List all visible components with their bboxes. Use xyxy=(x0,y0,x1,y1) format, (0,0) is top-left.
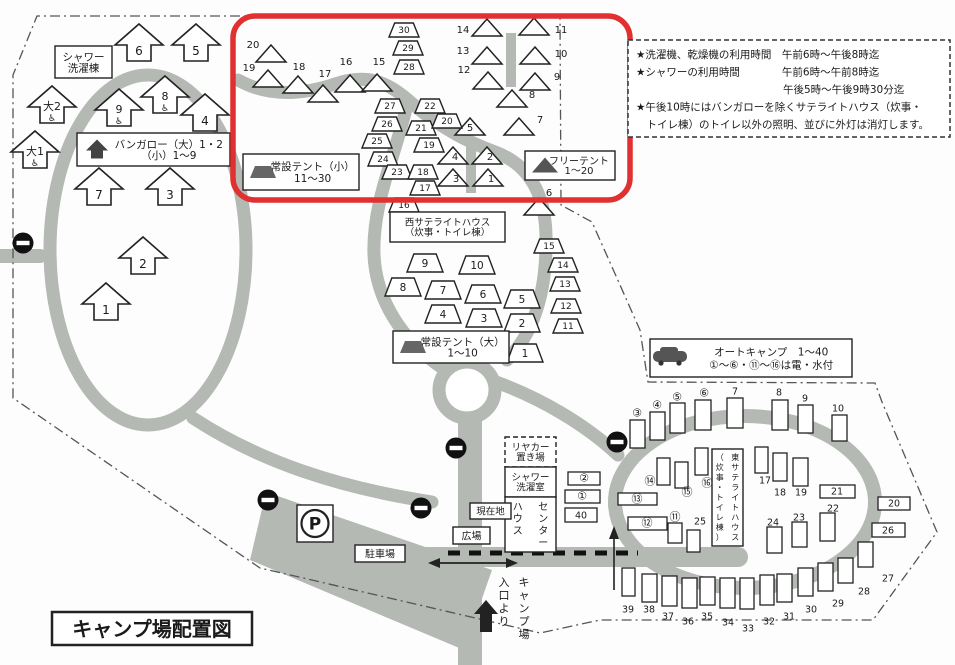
auto-site-35: 35 xyxy=(700,577,715,622)
large-tent-9: 9 xyxy=(407,254,443,272)
svg-text:2: 2 xyxy=(139,257,147,271)
svg-text:3: 3 xyxy=(453,174,459,185)
svg-text:午後5時～午後9時30分迄: 午後5時～午後9時30分迄 xyxy=(636,83,905,96)
large-tent-4: 4 xyxy=(425,305,461,323)
wheelchair-icon: ♿ xyxy=(48,114,56,124)
svg-text:4: 4 xyxy=(452,152,458,163)
svg-text:★シャワーの利用時間 午前6時～午前8時迄: ★シャワーの利用時間 午前6時～午前8時迄 xyxy=(636,66,880,79)
svg-text:⑯: ⑯ xyxy=(702,476,713,489)
svg-text:イ: イ xyxy=(716,503,724,512)
svg-text:キ: キ xyxy=(519,576,530,589)
svg-text:25: 25 xyxy=(694,516,706,527)
bungalow-大1: 大1♿ xyxy=(11,131,59,169)
svg-text:⑤: ⑤ xyxy=(672,390,682,403)
small-tent-28: 28 xyxy=(394,60,424,74)
svg-text:（炊事・トイレ棟）: （炊事・トイレ棟） xyxy=(405,227,491,239)
center-house-label: センターハウス xyxy=(505,497,556,552)
free-tent-7: 7 xyxy=(504,115,543,135)
auto-site-19: 19 xyxy=(793,458,808,498)
svg-text:④: ④ xyxy=(652,398,662,411)
svg-text:イ: イ xyxy=(731,493,739,502)
auto-site-26: 26 xyxy=(872,523,905,537)
svg-text:洗濯室: 洗濯室 xyxy=(516,482,545,494)
svg-text:東: 東 xyxy=(731,452,739,462)
auto-site-18: 18 xyxy=(773,453,787,498)
svg-text:6: 6 xyxy=(480,289,487,301)
svg-text:⑥: ⑥ xyxy=(699,386,709,399)
svg-text:12: 12 xyxy=(560,302,571,312)
small-tent-20: 20 xyxy=(432,114,462,128)
small-tent-27: 27 xyxy=(375,99,405,113)
auto-site-23: 23 xyxy=(792,512,807,547)
small-tent-29: 29 xyxy=(393,41,423,55)
svg-text:27: 27 xyxy=(384,102,395,112)
auto-site-⑤: ⑤ xyxy=(670,390,685,433)
no-entry-sign xyxy=(446,438,467,459)
auto-site-20: 20 xyxy=(878,497,910,510)
svg-text:22: 22 xyxy=(424,102,435,112)
bungalow-legend: バンガロー（大）1・2（小）1～9 xyxy=(77,133,230,166)
free-tent-20: 20 xyxy=(247,40,286,62)
svg-text:23: 23 xyxy=(793,512,805,523)
info-box: ★洗濯機、乾燥機の利用時間 午前6時～午後8時迄★シャワーの利用時間 午前6時～… xyxy=(628,40,950,137)
svg-text:タ: タ xyxy=(538,525,548,537)
svg-text:②: ② xyxy=(579,471,589,484)
svg-text:40: 40 xyxy=(575,510,587,521)
svg-text:19: 19 xyxy=(243,63,256,74)
svg-text:21: 21 xyxy=(831,486,843,497)
svg-text:39: 39 xyxy=(622,604,634,615)
svg-text:4: 4 xyxy=(201,114,209,128)
svg-text:⑬: ⑬ xyxy=(632,492,643,505)
shower-laundry-building-label: シャワー洗濯棟 xyxy=(55,46,112,78)
svg-text:14: 14 xyxy=(557,261,569,271)
svg-text:ト: ト xyxy=(731,503,739,512)
auto-site-24: 24 xyxy=(767,517,782,553)
svg-text:8: 8 xyxy=(776,387,782,398)
large-tent-10: 10 xyxy=(459,256,495,274)
free-tent-9: 9 xyxy=(520,72,560,90)
svg-text:ャ: ャ xyxy=(519,589,530,602)
svg-text:ハ: ハ xyxy=(513,502,523,513)
free-tent-11: 11 xyxy=(519,18,567,36)
svg-text:11: 11 xyxy=(562,322,573,332)
east-satellite-house-label: 東サテライトハウス（炊事・トイレ棟） xyxy=(712,449,743,546)
no-entry-sign xyxy=(607,432,628,453)
svg-text:①～⑥・⑪～⑯は電・水付: ①～⑥・⑪～⑯は電・水付 xyxy=(709,358,833,371)
rear-cart-storage-label: リヤカー置き場 xyxy=(505,437,556,467)
svg-text:19: 19 xyxy=(423,141,435,151)
svg-text:キャンプ場配置図: キャンプ場配置図 xyxy=(72,617,231,641)
free-tent-18: 18 xyxy=(283,62,313,93)
svg-text:10: 10 xyxy=(555,49,568,60)
svg-text:ウ: ウ xyxy=(513,513,523,525)
usage-info-box: ★洗濯機、乾燥機の利用時間 午前6時～午後8時迄★シャワーの利用時間 午前6時～… xyxy=(628,40,950,137)
auto-site-27: 27 xyxy=(858,542,894,584)
small-tent-23: 23 xyxy=(382,165,412,179)
free-tent-3: 3 xyxy=(438,169,468,186)
svg-text:駐車場: 駐車場 xyxy=(365,547,395,560)
auto-site-38: 38 xyxy=(642,574,657,615)
parking-area xyxy=(250,492,492,650)
svg-text:9: 9 xyxy=(802,393,808,404)
large-tent-5: 5 xyxy=(504,290,540,308)
svg-text:15: 15 xyxy=(373,57,386,68)
large-tent-legend: 常設テント（大）1～10 xyxy=(393,331,509,363)
svg-text:炊: 炊 xyxy=(716,462,724,472)
svg-text:28: 28 xyxy=(403,63,415,73)
svg-text:16: 16 xyxy=(340,57,353,68)
svg-text:20: 20 xyxy=(441,117,453,127)
svg-text:15: 15 xyxy=(543,242,554,252)
svg-text:14: 14 xyxy=(457,25,470,36)
svg-text:26: 26 xyxy=(381,120,393,130)
svg-text:常設テント（小）: 常設テント（小） xyxy=(271,160,355,173)
auto-site-⑮: ⑮ xyxy=(675,462,693,498)
auto-site-39: 39 xyxy=(622,568,635,615)
svg-text:（小）1～9: （小）1～9 xyxy=(141,150,196,162)
svg-text:38: 38 xyxy=(643,604,655,615)
svg-text:24: 24 xyxy=(767,517,779,528)
svg-text:5: 5 xyxy=(192,44,200,58)
auto-site-36: 36 xyxy=(682,578,697,627)
no-entry-sign xyxy=(411,498,432,519)
svg-text:20: 20 xyxy=(247,40,260,51)
auto-site-⑯: ⑯ xyxy=(695,448,713,489)
large-tent-2: 2 xyxy=(504,314,540,332)
southwest-connector-road xyxy=(193,418,432,502)
svg-text:1～20: 1～20 xyxy=(564,166,593,177)
campground-map: 65大2♿9♿8♿4大1♿732120191817161554231141113… xyxy=(0,0,955,665)
wheelchair-icon: ♿ xyxy=(161,104,169,114)
auto-site-34: 34 xyxy=(720,578,735,628)
svg-text:①: ① xyxy=(577,489,587,502)
small-tent-13: 13 xyxy=(550,277,580,291)
svg-text:広場: 広場 xyxy=(462,529,482,542)
bungalow-6: 6 xyxy=(115,24,163,61)
svg-text:1: 1 xyxy=(522,348,529,360)
svg-text:11: 11 xyxy=(555,25,568,36)
svg-text:セ: セ xyxy=(538,501,548,513)
auto-site-④: ④ xyxy=(650,398,665,440)
auto-camp-legend: オートキャンプ 1～40①～⑥・⑪～⑯は電・水付 xyxy=(650,339,852,377)
svg-text:8: 8 xyxy=(400,282,407,294)
bungalow-1: 1 xyxy=(82,283,130,320)
auto-site-①: ① xyxy=(565,489,600,503)
svg-text:19: 19 xyxy=(795,487,807,498)
svg-text:★洗濯機、乾燥機の利用時間 午前6時～午後8時迄: ★洗濯機、乾燥機の利用時間 午前6時～午後8時迄 xyxy=(636,48,880,61)
bungalow-3: 3 xyxy=(146,168,194,205)
auto-site-37: 37 xyxy=(662,576,677,622)
map-title: キャンプ場配置図 xyxy=(52,612,252,645)
auto-site-10: 10 xyxy=(832,403,847,441)
svg-text:34: 34 xyxy=(722,617,734,628)
small-tent-19: 19 xyxy=(414,138,444,152)
svg-text:）: ） xyxy=(716,533,724,542)
auto-site-9: 9 xyxy=(798,393,813,433)
auto-site-32: 32 xyxy=(760,575,775,627)
auto-site-40: 40 xyxy=(565,508,597,522)
svg-text:32: 32 xyxy=(763,616,775,627)
svg-text:ス: ス xyxy=(731,533,739,542)
svg-text:大2: 大2 xyxy=(43,99,61,113)
small-tent-11: 11 xyxy=(553,319,583,333)
svg-text:1: 1 xyxy=(488,174,494,185)
current-location-label: 現在地 xyxy=(470,503,511,519)
large-tent-6: 6 xyxy=(465,285,501,303)
svg-text:37: 37 xyxy=(662,611,674,622)
auto-site-17: 17 xyxy=(755,447,771,486)
free-tent-1: 1 xyxy=(473,169,503,186)
svg-text:トイレ棟）のトイレ以外の照明、並びに外灯は消灯します。: トイレ棟）のトイレ以外の照明、並びに外灯は消灯します。 xyxy=(636,118,929,131)
auto-site-②: ② xyxy=(568,471,600,485)
svg-text:8: 8 xyxy=(529,90,535,101)
wheelchair-icon: ♿ xyxy=(115,117,123,127)
svg-text:26: 26 xyxy=(882,525,894,536)
svg-text:20: 20 xyxy=(888,498,900,509)
small-tent-26: 26 xyxy=(372,117,402,131)
svg-text:7: 7 xyxy=(732,386,738,397)
auto-site-⑭: ⑭ xyxy=(645,458,671,487)
large-tent-3: 3 xyxy=(466,309,502,327)
svg-text:8: 8 xyxy=(162,90,169,103)
svg-text:大1: 大1 xyxy=(26,144,44,158)
svg-text:棟: 棟 xyxy=(716,522,724,532)
svg-text:ウ: ウ xyxy=(731,523,739,532)
roundabout xyxy=(439,362,495,418)
svg-text:よ: よ xyxy=(499,602,510,615)
svg-text:・: ・ xyxy=(716,483,724,492)
svg-text:プ: プ xyxy=(519,615,530,628)
svg-text:ン: ン xyxy=(538,514,548,525)
svg-text:11～30: 11～30 xyxy=(294,173,331,185)
svg-text:事: 事 xyxy=(716,472,724,482)
small-tent-12: 12 xyxy=(551,299,581,313)
svg-text:現在地: 現在地 xyxy=(476,506,505,518)
svg-text:35: 35 xyxy=(701,611,713,622)
small-tent-22: 22 xyxy=(415,99,445,113)
svg-text:27: 27 xyxy=(882,573,894,584)
small-tent-18: 18 xyxy=(408,165,438,179)
svg-text:22: 22 xyxy=(827,503,839,514)
svg-text:入: 入 xyxy=(499,576,510,589)
svg-text:12: 12 xyxy=(458,65,471,76)
svg-text:口: 口 xyxy=(499,589,510,602)
svg-text:31: 31 xyxy=(783,611,795,622)
small-tent-17: 17 xyxy=(410,181,440,195)
svg-text:ハ: ハ xyxy=(731,513,739,522)
svg-text:17: 17 xyxy=(419,184,430,194)
auto-site-25: 25 xyxy=(687,516,706,552)
auto-site-7: 7 xyxy=(727,386,743,428)
free-tent-14: 14 xyxy=(457,19,502,36)
svg-text:29: 29 xyxy=(832,598,844,609)
svg-text:28: 28 xyxy=(858,586,870,597)
bungalow-5: 5 xyxy=(172,24,220,61)
svg-text:1～10: 1～10 xyxy=(447,347,478,359)
svg-text:4: 4 xyxy=(440,309,447,321)
svg-text:★午後10時にはバンガローを除くサテライトハウス（炊事・: ★午後10時にはバンガローを除くサテライトハウス（炊事・ xyxy=(636,101,922,114)
svg-text:1: 1 xyxy=(102,303,110,317)
svg-text:9: 9 xyxy=(554,72,560,83)
svg-text:9: 9 xyxy=(422,258,429,270)
svg-text:⑫: ⑫ xyxy=(642,516,653,529)
svg-text:ン: ン xyxy=(519,602,530,615)
small-tent-30: 30 xyxy=(389,23,419,37)
svg-text:18: 18 xyxy=(417,168,429,178)
auto-site-⑬: ⑬ xyxy=(618,492,657,505)
entrance-label: キャンプ場入口より xyxy=(499,576,530,641)
svg-text:7: 7 xyxy=(537,115,543,126)
svg-text:2: 2 xyxy=(519,318,526,330)
svg-text:サ: サ xyxy=(731,463,739,472)
free-tent-10: 10 xyxy=(520,47,567,64)
free-tent-legend: フリーテント1～20 xyxy=(525,151,615,180)
auto-site-31: 31 xyxy=(777,574,795,622)
large-tent-7: 7 xyxy=(425,281,461,299)
svg-text:洗濯棟: 洗濯棟 xyxy=(68,61,100,74)
svg-text:ス: ス xyxy=(513,526,523,537)
svg-text:ト: ト xyxy=(716,493,724,502)
map-canvas: 65大2♿9♿8♿4大1♿732120191817161554231141113… xyxy=(0,0,955,665)
small-tent-14: 14 xyxy=(548,258,578,272)
plaza-label: 広場 xyxy=(453,527,490,544)
tent-divider-bar xyxy=(506,33,516,87)
svg-text:17: 17 xyxy=(759,475,771,486)
svg-text:3: 3 xyxy=(166,188,174,202)
svg-text:18: 18 xyxy=(293,62,306,73)
bungalow-大2: 大2♿ xyxy=(28,86,76,124)
large-tent-8: 8 xyxy=(385,278,421,296)
west-satellite-house-label: 西サテライトハウス（炊事・トイレ棟） xyxy=(390,212,505,242)
svg-text:23: 23 xyxy=(391,168,402,178)
bungalow-7: 7 xyxy=(75,168,123,205)
auto-site-22: 22 xyxy=(820,503,839,541)
auto-site-③: ③ xyxy=(630,406,645,448)
svg-text:⑭: ⑭ xyxy=(645,474,656,487)
svg-text:7: 7 xyxy=(95,188,103,202)
svg-text:13: 13 xyxy=(559,280,570,290)
svg-text:P: P xyxy=(309,515,321,535)
no-entry-sign xyxy=(258,490,279,511)
svg-text:オートキャンプ 1～40: オートキャンプ 1～40 xyxy=(714,347,828,359)
svg-text:25: 25 xyxy=(371,137,382,147)
parking-lot-label: 駐車場 xyxy=(355,545,405,562)
auto-site-⑪: ⑪ xyxy=(668,510,682,543)
svg-text:⑮: ⑮ xyxy=(682,485,693,498)
svg-text:30: 30 xyxy=(805,604,817,615)
svg-text:21: 21 xyxy=(415,124,426,134)
svg-text:3: 3 xyxy=(481,313,488,325)
bungalow-2: 2 xyxy=(119,237,167,274)
wheelchair-icon: ♿ xyxy=(31,159,39,169)
svg-text:18: 18 xyxy=(774,487,786,498)
svg-text:ー: ー xyxy=(538,538,548,549)
small-tent-legend: 常設テント（小）11～30 xyxy=(243,154,359,190)
svg-text:10: 10 xyxy=(470,260,483,272)
svg-text:5: 5 xyxy=(519,294,526,306)
svg-text:13: 13 xyxy=(457,46,470,57)
svg-text:10: 10 xyxy=(832,403,844,414)
svg-text:5: 5 xyxy=(467,123,473,134)
no-entry-sign xyxy=(13,233,34,254)
svg-text:36: 36 xyxy=(682,616,694,627)
shower-laundry-room-label: シャワー洗濯室 xyxy=(505,467,556,497)
small-tent-25: 25 xyxy=(362,134,392,148)
small-tent-24: 24 xyxy=(368,152,398,166)
small-tent-15: 15 xyxy=(534,239,564,253)
svg-text:29: 29 xyxy=(402,44,414,54)
free-tent-8: 8 xyxy=(497,90,535,107)
svg-text:ラ: ラ xyxy=(731,483,739,492)
svg-text:6: 6 xyxy=(135,44,143,58)
free-tent-12: 12 xyxy=(458,65,503,89)
svg-text:30: 30 xyxy=(398,26,410,36)
auto-site-⑥: ⑥ xyxy=(695,386,711,430)
svg-text:2: 2 xyxy=(487,152,493,163)
svg-text:（: （ xyxy=(716,453,724,462)
auto-site-⑫: ⑫ xyxy=(628,516,667,530)
svg-text:17: 17 xyxy=(319,69,332,80)
svg-text:場: 場 xyxy=(519,628,530,641)
svg-text:レ: レ xyxy=(716,513,724,522)
svg-text:③: ③ xyxy=(632,406,642,419)
svg-text:24: 24 xyxy=(377,155,389,165)
svg-text:33: 33 xyxy=(742,623,754,634)
svg-text:7: 7 xyxy=(440,285,447,297)
auto-site-8: 8 xyxy=(772,387,788,430)
parking-symbol: P xyxy=(297,505,333,542)
auto-site-33: 33 xyxy=(740,578,754,634)
large-tent-1: 1 xyxy=(507,344,543,362)
svg-text:⑪: ⑪ xyxy=(670,510,681,523)
svg-text:9: 9 xyxy=(116,103,123,116)
free-tent-13: 13 xyxy=(457,46,502,64)
svg-text:テ: テ xyxy=(731,473,739,482)
svg-text:り: り xyxy=(499,615,510,628)
svg-text:置き場: 置き場 xyxy=(516,452,545,464)
auto-site-21: 21 xyxy=(820,485,855,498)
